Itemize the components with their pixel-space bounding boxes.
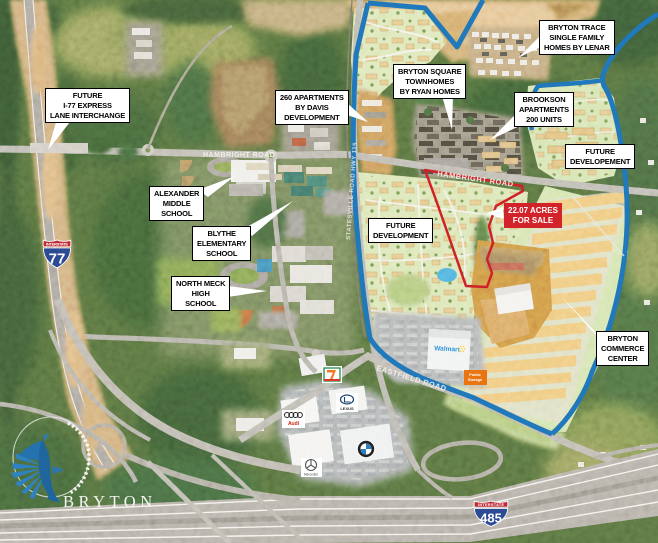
- svg-text:Audi: Audi: [288, 421, 300, 427]
- svg-text:LEXUS: LEXUS: [340, 406, 354, 411]
- svg-text:HAMBRIGHT ROAD: HAMBRIGHT ROAD: [203, 152, 275, 159]
- svg-text:INTERSTATE: INTERSTATE: [478, 503, 504, 507]
- svg-text:Public: Public: [469, 373, 480, 377]
- svg-text:77: 77: [49, 251, 66, 268]
- svg-text:INTERSTATE: INTERSTATE: [46, 242, 68, 247]
- svg-text:BRYTON: BRYTON: [63, 492, 157, 511]
- svg-text:Storage: Storage: [468, 378, 482, 382]
- svg-text:485: 485: [480, 511, 502, 526]
- svg-text:Mercedes: Mercedes: [304, 473, 318, 477]
